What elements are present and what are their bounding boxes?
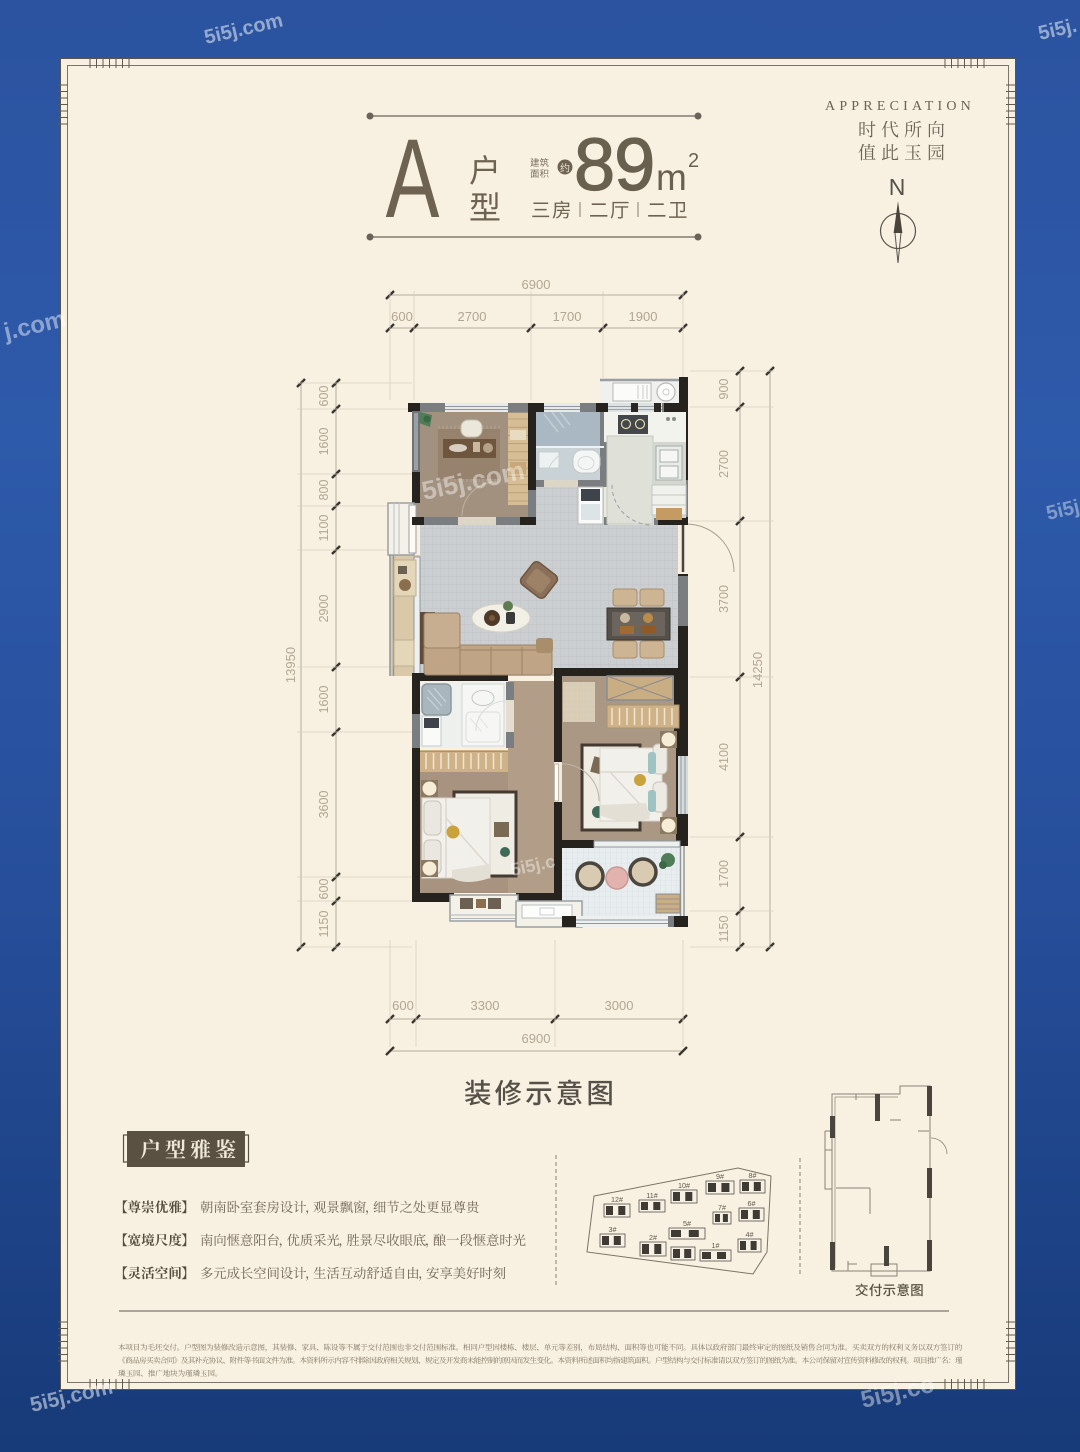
svg-text:8#: 8# (749, 1171, 757, 1180)
svg-text:11#: 11# (646, 1191, 657, 1200)
svg-text:1600: 1600 (317, 686, 331, 714)
svg-text:1150: 1150 (717, 916, 731, 943)
svg-text:900: 900 (717, 379, 731, 400)
svg-text:6#: 6# (748, 1199, 756, 1208)
svg-text:10#: 10# (678, 1181, 690, 1190)
svg-text:2#: 2# (649, 1233, 657, 1242)
svg-text:1700: 1700 (717, 860, 731, 888)
svg-text:600: 600 (317, 386, 331, 407)
svg-text:1#: 1# (712, 1241, 720, 1250)
svg-text:6900: 6900 (522, 277, 551, 292)
svg-text:2900: 2900 (317, 595, 331, 623)
svg-text:APPRECIATION: APPRECIATION (825, 99, 975, 114)
svg-text:14250: 14250 (750, 652, 765, 688)
svg-text:3#: 3# (609, 1225, 617, 1234)
svg-text:4100: 4100 (717, 743, 731, 771)
svg-text:1700: 1700 (553, 309, 582, 324)
svg-text:4#: 4# (746, 1230, 754, 1239)
svg-text:3300: 3300 (471, 998, 500, 1013)
svg-text:3000: 3000 (605, 998, 634, 1013)
svg-text:800: 800 (317, 480, 331, 501)
svg-text:1600: 1600 (317, 428, 331, 456)
svg-text:13950: 13950 (283, 647, 298, 683)
svg-text:1150: 1150 (317, 911, 331, 938)
svg-text:2700: 2700 (717, 450, 731, 478)
svg-text:2: 2 (688, 150, 699, 172)
svg-text:1100: 1100 (317, 515, 331, 542)
svg-text:12#: 12# (611, 1195, 623, 1204)
svg-text:m: m (656, 157, 687, 198)
svg-text:9#: 9# (716, 1172, 724, 1181)
svg-text:6900: 6900 (522, 1031, 551, 1046)
svg-text:3700: 3700 (717, 585, 731, 613)
svg-text:2700: 2700 (458, 309, 487, 324)
svg-text:600: 600 (392, 998, 414, 1013)
svg-text:3600: 3600 (317, 791, 331, 819)
svg-text:A: A (386, 116, 440, 241)
svg-text:1900: 1900 (629, 309, 658, 324)
svg-text:7#: 7# (718, 1203, 726, 1212)
svg-text:5#: 5# (683, 1219, 691, 1228)
svg-text:600: 600 (391, 309, 413, 324)
svg-text:600: 600 (317, 879, 331, 900)
svg-text:N: N (889, 174, 906, 200)
svg-text:89: 89 (574, 123, 654, 206)
